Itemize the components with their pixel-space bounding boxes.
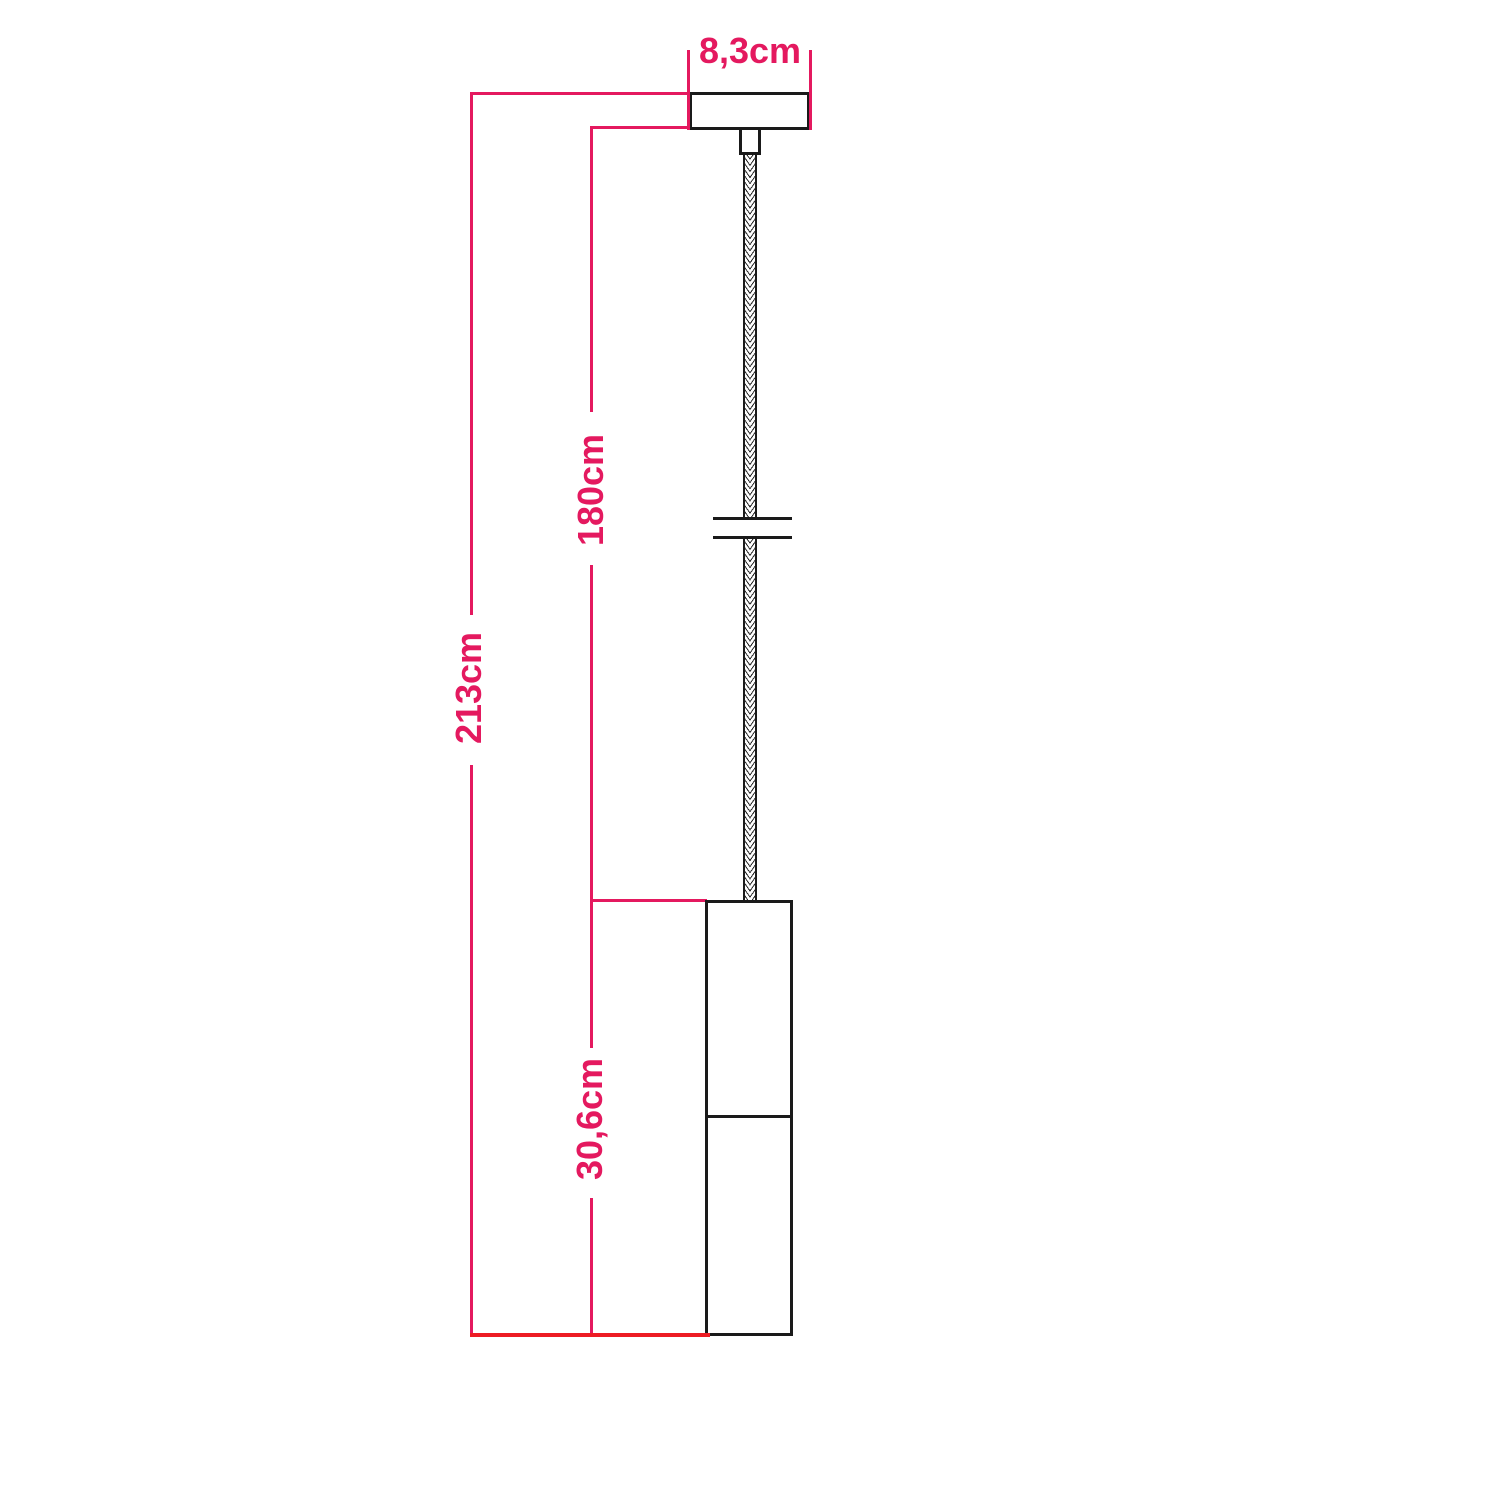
braided-cable-lower [743, 538, 757, 903]
dim-lamp-line-lower [590, 1198, 593, 1336]
pendant-lamp-dimension-diagram: 8,3cm 213cm 180cm 30,6cm [0, 0, 1500, 1500]
cable-braid-texture [750, 153, 755, 519]
dim-cable-line-upper [590, 126, 593, 412]
lamp-body [705, 900, 793, 1336]
braided-cable-upper [743, 153, 757, 519]
dim-total-line-upper [470, 92, 473, 615]
cable-separator-disc [713, 517, 792, 539]
dim-canopy-tick-right [809, 50, 812, 130]
dim-cable-line-lower [590, 565, 593, 901]
dim-label-cable-drop: 180cm [573, 434, 609, 546]
dim-total-line-lower [470, 765, 473, 1336]
dim-label-lamp-height: 30,6cm [572, 1058, 608, 1180]
dim-baseline-red [470, 1333, 710, 1337]
ceiling-canopy [689, 92, 810, 130]
dim-label-canopy-width: 8,3cm [699, 33, 801, 69]
dim-canopy-tick-left [687, 50, 690, 130]
dim-total-ext-top [470, 92, 692, 95]
dim-label-total-drop: 213cm [451, 632, 487, 744]
lamp-section-divider [705, 1115, 793, 1118]
cable-braid-texture [750, 538, 755, 903]
dim-lamp-line-upper [590, 901, 593, 1048]
cable-grip [739, 127, 761, 155]
dim-lamp-ext-top [590, 899, 707, 902]
